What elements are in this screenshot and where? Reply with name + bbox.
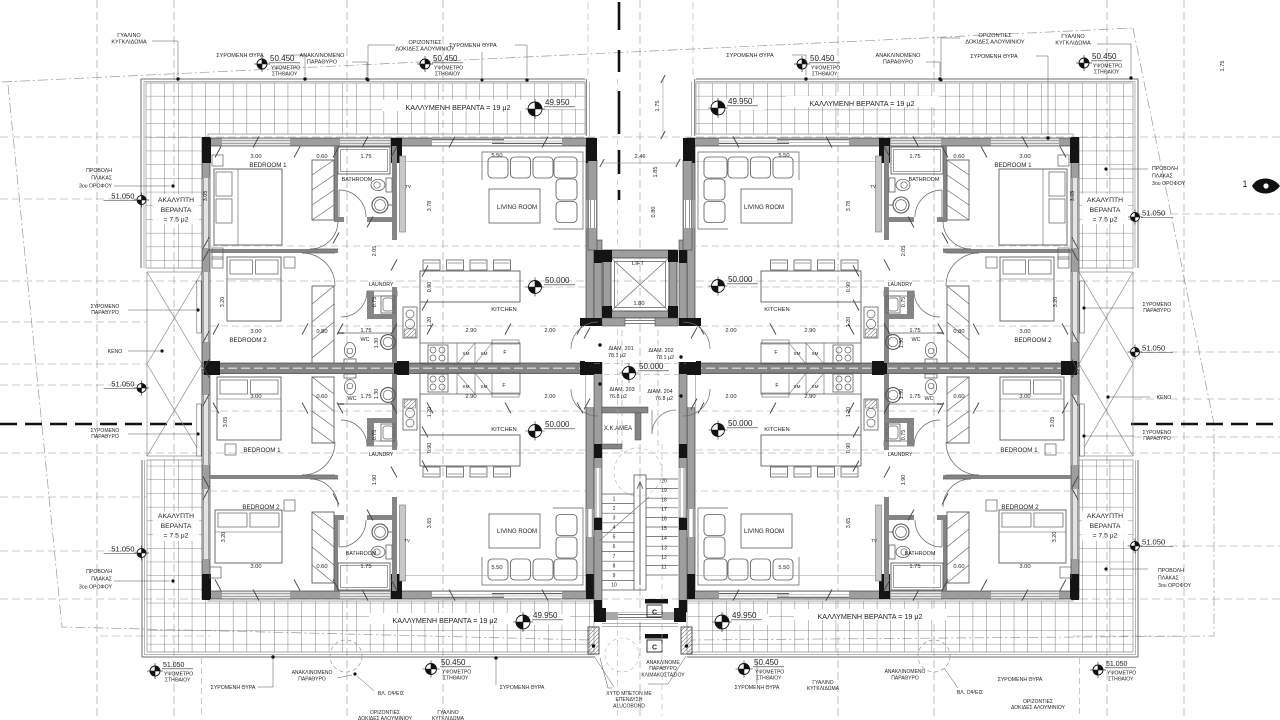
svg-text:0.75: 0.75 bbox=[901, 430, 907, 441]
svg-text:3.05: 3.05 bbox=[223, 417, 229, 428]
svg-text:ΔΟΚΙΔΕΣ ΑΛΟΥΜΙΝΙΟΥ: ΔΟΚΙΔΕΣ ΑΛΟΥΜΙΝΙΟΥ bbox=[395, 46, 455, 52]
svg-text:ΣΥΡΟΜΕΝΟ: ΣΥΡΟΜΕΝΟ bbox=[1143, 430, 1172, 436]
svg-text:3.00: 3.00 bbox=[1019, 394, 1030, 400]
svg-text:F: F bbox=[503, 350, 506, 356]
svg-text:ΒΕΡΑΝΤΑ: ΒΕΡΑΝΤΑ bbox=[1090, 523, 1121, 530]
svg-text:ΑΚΑΛΥΠΤΗ: ΑΚΑΛΥΠΤΗ bbox=[1087, 513, 1123, 520]
svg-text:3.78: 3.78 bbox=[427, 201, 433, 212]
svg-text:5.50: 5.50 bbox=[778, 153, 789, 159]
svg-text:SM: SM bbox=[463, 384, 470, 389]
svg-text:ΠΡΟΒΟΛΗ: ΠΡΟΒΟΛΗ bbox=[1152, 166, 1178, 172]
svg-text:ΑΝΑΚΛΙΝΟΜΕ: ΑΝΑΚΛΙΝΟΜΕ bbox=[646, 660, 680, 666]
svg-text:0.75: 0.75 bbox=[372, 430, 378, 441]
svg-text:ΣΥΡΟΜΕΝΗ ΘΥΡΑ: ΣΥΡΟΜΕΝΗ ΘΥΡΑ bbox=[216, 53, 264, 59]
svg-text:LIVING ROOM: LIVING ROOM bbox=[497, 529, 537, 535]
svg-text:ΚΥΓΚΛΙΔΩΜΑ: ΚΥΓΚΛΙΔΩΜΑ bbox=[807, 686, 840, 692]
svg-text:1.90: 1.90 bbox=[901, 475, 907, 486]
svg-text:ΕΠΕΝΔΥΣΗ: ΕΠΕΝΔΥΣΗ bbox=[616, 697, 643, 703]
svg-text:51.050: 51.050 bbox=[111, 192, 134, 201]
svg-text:51.050: 51.050 bbox=[1142, 538, 1165, 547]
svg-text:ΥΨΟΜΕΤΡΟ: ΥΨΟΜΕΤΡΟ bbox=[755, 669, 784, 675]
svg-text:5.50: 5.50 bbox=[491, 565, 502, 571]
svg-text:ΣΥΡΟΜΕΝΟ: ΣΥΡΟΜΕΝΟ bbox=[1143, 302, 1172, 308]
svg-text:ΟΡΙΖΟΝΤΙΕΣ: ΟΡΙΖΟΝΤΙΕΣ bbox=[408, 40, 442, 46]
svg-text:ΔΟΚΙΔΕΣ ΑΛΟΥΜΙΝΙΟΥ: ΔΟΚΙΔΕΣ ΑΛΟΥΜΙΝΙΟΥ bbox=[358, 716, 413, 720]
svg-text:2.05: 2.05 bbox=[901, 246, 907, 257]
svg-text:0.90: 0.90 bbox=[427, 282, 433, 293]
svg-text:51.050: 51.050 bbox=[163, 662, 185, 669]
svg-text:0.80: 0.80 bbox=[316, 329, 327, 335]
svg-text:ΟΡΙΖΟΝΤΙΕΣ: ΟΡΙΖΟΝΤΙΕΣ bbox=[978, 33, 1012, 39]
svg-text:1.20: 1.20 bbox=[846, 317, 852, 328]
svg-text:LAUNDRY: LAUNDRY bbox=[369, 282, 394, 288]
svg-text:KITCHEN: KITCHEN bbox=[491, 307, 516, 313]
svg-text:51.050: 51.050 bbox=[111, 380, 134, 389]
svg-text:3: 3 bbox=[613, 516, 616, 522]
svg-text:ΠΑΡΑΘΥΡΟ: ΠΑΡΑΘΥΡΟ bbox=[649, 666, 677, 672]
svg-text:ΥΨΟΜΕΤΡΟ: ΥΨΟΜΕΤΡΟ bbox=[1093, 63, 1122, 69]
svg-text:50.450: 50.450 bbox=[754, 658, 779, 667]
svg-text:50.000: 50.000 bbox=[728, 275, 753, 284]
svg-text:ΥΨΟΜΕΤΡΟ: ΥΨΟΜΕΤΡΟ bbox=[164, 671, 193, 677]
svg-text:1.75: 1.75 bbox=[360, 328, 371, 334]
svg-text:ΠΛΑΚΑΣ: ΠΛΑΚΑΣ bbox=[91, 176, 112, 182]
svg-text:ΥΨΟΜΕΤΡΟ: ΥΨΟΜΕΤΡΟ bbox=[1107, 670, 1136, 676]
svg-text:2.90: 2.90 bbox=[465, 328, 476, 334]
svg-text:SM: SM bbox=[463, 351, 470, 356]
svg-text:2.90: 2.90 bbox=[465, 394, 476, 400]
svg-text:0.60: 0.60 bbox=[953, 564, 964, 570]
svg-text:= 7.5 μ2: = 7.5 μ2 bbox=[164, 533, 189, 540]
svg-text:3.00: 3.00 bbox=[250, 154, 261, 160]
svg-text:BEDROOM 2: BEDROOM 2 bbox=[229, 337, 267, 344]
svg-text:3.00: 3.00 bbox=[250, 394, 261, 400]
svg-text:3.20: 3.20 bbox=[1052, 532, 1058, 543]
svg-text:ΠΑΡΑΘΥΡΟ: ΠΑΡΑΘΥΡΟ bbox=[1143, 308, 1171, 314]
svg-text:ΔΙΑΜ. 202: ΔΙΑΜ. 202 bbox=[648, 348, 673, 354]
svg-text:1: 1 bbox=[613, 497, 616, 503]
svg-text:ΠΡΟΒΟΛΗ: ΠΡΟΒΟΛΗ bbox=[86, 569, 112, 575]
svg-text:0.90: 0.90 bbox=[846, 282, 852, 293]
svg-text:ΠΡΟΒΟΛΗ: ΠΡΟΒΟΛΗ bbox=[86, 168, 112, 174]
svg-text:ΠΑΡΑΘΥΡΟ: ΠΑΡΑΘΥΡΟ bbox=[307, 59, 338, 65]
svg-text:ΚΑΛΛΥΜΕΝΗ ΒΕΡΑΝΤΑ = 19 μ2: ΚΑΛΛΥΜΕΝΗ ΒΕΡΑΝΤΑ = 19 μ2 bbox=[405, 103, 510, 112]
svg-text:ΚΛΙΜΑΚΟΣΤΑΣΙΟΥ: ΚΛΙΜΑΚΟΣΤΑΣΙΟΥ bbox=[641, 672, 685, 678]
svg-text:1.20: 1.20 bbox=[846, 407, 852, 418]
svg-text:ΑΝΑΚΛΙΝΟΜΕΝΟ: ΑΝΑΚΛΙΝΟΜΕΝΟ bbox=[876, 53, 922, 59]
svg-text:1.20: 1.20 bbox=[427, 407, 433, 418]
svg-text:49.950: 49.950 bbox=[545, 98, 570, 107]
svg-text:ALUCOBOND: ALUCOBOND bbox=[613, 703, 645, 709]
svg-text:ΚΑΛΛΥΜΕΝΗ ΒΕΡΑΝΤΑ = 19 μ2: ΚΑΛΛΥΜΕΝΗ ΒΕΡΑΝΤΑ = 19 μ2 bbox=[392, 616, 497, 625]
svg-text:ΣΥΡΟΜΕΝΗ ΘΥΡΑ: ΣΥΡΟΜΕΝΗ ΘΥΡΑ bbox=[726, 53, 774, 59]
svg-text:3.20: 3.20 bbox=[221, 532, 227, 543]
svg-text:ΣΤΗΘΑΙΟΥ: ΣΤΗΘΑΙΟΥ bbox=[435, 72, 461, 78]
svg-text:3.00: 3.00 bbox=[250, 329, 261, 335]
svg-text:TV: TV bbox=[870, 184, 877, 189]
svg-text:ΚΥΓΚΛΙΔΩΜΑ: ΚΥΓΚΛΙΔΩΜΑ bbox=[1055, 40, 1091, 46]
svg-text:ΔΙΑΜ. 201: ΔΙΑΜ. 201 bbox=[608, 346, 633, 352]
svg-text:BEDROOM 2: BEDROOM 2 bbox=[242, 504, 280, 511]
svg-text:ΠΑΡΑΘΥΡΟ: ΠΑΡΑΘΥΡΟ bbox=[883, 59, 914, 65]
svg-text:0.80: 0.80 bbox=[953, 329, 964, 335]
svg-text:1.30: 1.30 bbox=[899, 338, 905, 349]
svg-text:51.050: 51.050 bbox=[1142, 344, 1165, 353]
svg-text:ΣΤΗΘΑΙΟΥ: ΣΤΗΘΑΙΟΥ bbox=[165, 678, 191, 684]
svg-text:WC: WC bbox=[348, 396, 357, 402]
svg-text:SM: SM bbox=[481, 384, 488, 389]
svg-text:TV: TV bbox=[404, 538, 411, 543]
svg-text:2.00: 2.00 bbox=[544, 394, 555, 400]
svg-text:0.60: 0.60 bbox=[316, 394, 327, 400]
svg-text:ΧΥΤΟ ΜΠΕΤΟΝ ΜΕ: ΧΥΤΟ ΜΠΕΤΟΝ ΜΕ bbox=[606, 691, 652, 697]
svg-text:0.60: 0.60 bbox=[316, 154, 327, 160]
svg-text:LIVING ROOM: LIVING ROOM bbox=[744, 205, 784, 211]
svg-text:ΚΕΝΟ: ΚΕΝΟ bbox=[1157, 395, 1172, 401]
svg-text:ΣΥΡΟΜΕΝΗ ΘΥΡΑ: ΣΥΡΟΜΕΝΗ ΘΥΡΑ bbox=[970, 54, 1018, 60]
svg-text:1: 1 bbox=[1242, 179, 1247, 189]
svg-text:2.05: 2.05 bbox=[372, 246, 378, 257]
svg-text:C: C bbox=[652, 610, 657, 617]
svg-text:8: 8 bbox=[613, 563, 616, 569]
svg-text:ΚΕΝΟ: ΚΕΝΟ bbox=[108, 349, 123, 355]
svg-text:BATHROOM: BATHROOM bbox=[342, 177, 373, 183]
svg-text:1.80: 1.80 bbox=[633, 301, 644, 307]
svg-text:Χ.Κ.ΑΜΕΑ: Χ.Κ.ΑΜΕΑ bbox=[604, 426, 632, 432]
svg-text:SM: SM bbox=[812, 351, 819, 356]
svg-text:ΣΥΡΟΜΕΝΟ: ΣΥΡΟΜΕΝΟ bbox=[91, 428, 120, 434]
svg-text:BEDROOM 2: BEDROOM 2 bbox=[1014, 337, 1052, 344]
svg-text:BEDROOM 1: BEDROOM 1 bbox=[1000, 447, 1038, 454]
svg-text:3.00: 3.00 bbox=[1019, 154, 1030, 160]
svg-text:ΣΥΡΟΜΕΝΟ: ΣΥΡΟΜΕΝΟ bbox=[91, 304, 120, 310]
svg-text:KITCHEN: KITCHEN bbox=[764, 307, 789, 313]
svg-text:76.8 μ2: 76.8 μ2 bbox=[609, 394, 627, 400]
svg-text:ΑΝΑΚΛΙΝΟΜΕΝΟ: ΑΝΑΚΛΙΝΟΜΕΝΟ bbox=[885, 669, 926, 675]
svg-text:LIVING ROOM: LIVING ROOM bbox=[744, 529, 784, 535]
svg-text:0.90: 0.90 bbox=[427, 443, 433, 454]
svg-text:51.050: 51.050 bbox=[1142, 209, 1165, 218]
svg-text:ΣΤΗΘΑΙΟΥ: ΣΤΗΘΑΙΟΥ bbox=[1094, 70, 1120, 76]
svg-text:BATHROOM: BATHROOM bbox=[909, 177, 940, 183]
svg-text:0.60: 0.60 bbox=[953, 154, 964, 160]
svg-text:50.450: 50.450 bbox=[433, 54, 458, 63]
svg-text:ΓΥΑΛΙΝΟ: ΓΥΑΛΙΝΟ bbox=[812, 680, 833, 686]
svg-text:SM: SM bbox=[481, 351, 488, 356]
svg-text:50.000: 50.000 bbox=[639, 362, 664, 371]
svg-text:2: 2 bbox=[613, 506, 616, 512]
svg-text:ΔΙΑΜ. 203: ΔΙΑΜ. 203 bbox=[609, 387, 634, 393]
svg-text:50.000: 50.000 bbox=[728, 419, 753, 428]
svg-text:1.75: 1.75 bbox=[1220, 61, 1226, 72]
svg-text:5.50: 5.50 bbox=[778, 565, 789, 571]
svg-text:3ου ΟΡΟΦΟΥ: 3ου ΟΡΟΦΟΥ bbox=[79, 584, 113, 590]
svg-text:51.050: 51.050 bbox=[1106, 661, 1128, 668]
svg-text:76.8 μ2: 76.8 μ2 bbox=[655, 396, 673, 402]
svg-text:2.46: 2.46 bbox=[635, 154, 646, 160]
svg-text:ΠΡΟΒΟΛΗ: ΠΡΟΒΟΛΗ bbox=[1158, 568, 1184, 574]
svg-text:3.20: 3.20 bbox=[1053, 297, 1059, 308]
svg-text:50.450: 50.450 bbox=[270, 54, 295, 63]
svg-text:ΒΕΡΑΝΤΑ: ΒΕΡΑΝΤΑ bbox=[1090, 207, 1121, 214]
svg-text:3.05: 3.05 bbox=[1050, 417, 1056, 428]
svg-text:ΑΝΑΚΛΙΝΟΜΕΝΟ: ΑΝΑΚΛΙΝΟΜΕΝΟ bbox=[292, 670, 333, 676]
svg-text:3.20: 3.20 bbox=[220, 297, 226, 308]
svg-text:ΚΥΓΚΛΙΔΩΜΑ: ΚΥΓΚΛΙΔΩΜΑ bbox=[111, 39, 147, 45]
svg-text:3.65: 3.65 bbox=[427, 518, 433, 529]
svg-text:TV: TV bbox=[871, 538, 878, 543]
svg-text:3.00: 3.00 bbox=[250, 564, 261, 570]
svg-text:LAUNDRY: LAUNDRY bbox=[888, 452, 913, 458]
svg-text:1.75: 1.75 bbox=[655, 101, 661, 112]
svg-text:ΥΨΟΜΕΤΡΟ: ΥΨΟΜΕΤΡΟ bbox=[811, 65, 840, 71]
svg-text:ΚΥΓΚΛΙΔΩΜΑ: ΚΥΓΚΛΙΔΩΜΑ bbox=[432, 716, 465, 720]
svg-text:ΣΥΡΟΜΕΝΗ ΘΥΡΑ: ΣΥΡΟΜΕΝΗ ΘΥΡΑ bbox=[735, 685, 780, 691]
svg-text:1.30: 1.30 bbox=[374, 338, 380, 349]
svg-text:1.75: 1.75 bbox=[909, 154, 920, 160]
svg-text:0.80: 0.80 bbox=[651, 207, 657, 218]
svg-text:ΠΛΑΚΑΣ: ΠΛΑΚΑΣ bbox=[1158, 575, 1179, 581]
svg-text:BEDROOM 1: BEDROOM 1 bbox=[249, 162, 287, 169]
svg-text:ΒΕΡΑΝΤΑ: ΒΕΡΑΝΤΑ bbox=[161, 523, 192, 530]
svg-text:1.20: 1.20 bbox=[427, 317, 433, 328]
svg-text:3.00: 3.00 bbox=[1019, 564, 1030, 570]
svg-text:ΑΝΑΚΛΙΝΟΜΕΝΟ: ΑΝΑΚΛΙΝΟΜΕΝΟ bbox=[300, 53, 346, 59]
svg-text:50.000: 50.000 bbox=[545, 420, 570, 429]
svg-text:ΒΛ. ΟΨΕΙΣ: ΒΛ. ΟΨΕΙΣ bbox=[378, 691, 404, 697]
svg-text:F: F bbox=[775, 383, 778, 389]
svg-text:1.85: 1.85 bbox=[653, 167, 659, 178]
svg-text:50.450: 50.450 bbox=[441, 658, 466, 667]
svg-text:49.950: 49.950 bbox=[533, 611, 558, 620]
svg-text:3.00: 3.00 bbox=[1019, 329, 1030, 335]
svg-text:5.50: 5.50 bbox=[491, 153, 502, 159]
svg-text:LAUNDRY: LAUNDRY bbox=[369, 452, 394, 458]
svg-text:SM: SM bbox=[794, 351, 801, 356]
svg-text:ΣΤΗΘΑΙΟΥ: ΣΤΗΘΑΙΟΥ bbox=[756, 676, 782, 682]
svg-text:ΔΙΑΜ. 204: ΔΙΑΜ. 204 bbox=[647, 389, 672, 395]
svg-text:ΥΨΟΜΕΤΡΟ: ΥΨΟΜΕΤΡΟ bbox=[271, 65, 300, 71]
svg-text:TV: TV bbox=[405, 184, 412, 189]
svg-text:= 7.5 μ2: = 7.5 μ2 bbox=[164, 217, 189, 224]
svg-text:1.30: 1.30 bbox=[899, 389, 905, 400]
svg-text:5: 5 bbox=[613, 535, 616, 541]
svg-text:LIVING ROOM: LIVING ROOM bbox=[497, 205, 537, 211]
svg-text:3.05: 3.05 bbox=[1070, 191, 1076, 202]
svg-text:BEDROOM 1: BEDROOM 1 bbox=[994, 162, 1032, 169]
svg-text:1.30: 1.30 bbox=[374, 389, 380, 400]
svg-text:LAUNDRY: LAUNDRY bbox=[888, 282, 913, 288]
svg-text:C: C bbox=[652, 645, 657, 652]
svg-text:ΣΥΡΟΜΕΝΗ ΘΥΡΑ: ΣΥΡΟΜΕΝΗ ΘΥΡΑ bbox=[998, 677, 1043, 683]
svg-text:1.75: 1.75 bbox=[360, 394, 371, 400]
svg-text:ΔΟΚΙΔΕΣ ΑΛΟΥΜΙΝΙΟΥ: ΔΟΚΙΔΕΣ ΑΛΟΥΜΙΝΙΟΥ bbox=[965, 39, 1025, 45]
svg-text:WC: WC bbox=[925, 396, 934, 402]
svg-text:ΣΤΗΘΑΙΟΥ: ΣΤΗΘΑΙΟΥ bbox=[1108, 677, 1134, 683]
svg-text:BATHROOM: BATHROOM bbox=[346, 551, 377, 557]
svg-text:9: 9 bbox=[613, 573, 616, 579]
svg-text:3.05: 3.05 bbox=[203, 191, 209, 202]
svg-text:ΑΚΑΛΥΠΤΗ: ΑΚΑΛΥΠΤΗ bbox=[1087, 197, 1123, 204]
svg-text:0.60: 0.60 bbox=[953, 394, 964, 400]
svg-text:3.65: 3.65 bbox=[846, 518, 852, 529]
svg-text:ΒΛ. ΟΨΕΙΣ: ΒΛ. ΟΨΕΙΣ bbox=[957, 690, 983, 696]
svg-text:3.78: 3.78 bbox=[846, 201, 852, 212]
svg-text:ΚΑΛΛΥΜΕΝΗ ΒΕΡΑΝΤΑ = 19 μ2: ΚΑΛΛΥΜΕΝΗ ΒΕΡΑΝΤΑ = 19 μ2 bbox=[809, 99, 914, 108]
svg-text:ΥΨΟΜΕΤΡΟ: ΥΨΟΜΕΤΡΟ bbox=[442, 669, 471, 675]
svg-text:2.90: 2.90 bbox=[804, 328, 815, 334]
svg-text:49.950: 49.950 bbox=[728, 97, 753, 106]
svg-text:50.450: 50.450 bbox=[1092, 52, 1117, 61]
svg-text:KITCHEN: KITCHEN bbox=[764, 427, 789, 433]
svg-text:BEDROOM 1: BEDROOM 1 bbox=[243, 447, 281, 454]
svg-text:ΥΨΟΜΕΤΡΟ: ΥΨΟΜΕΤΡΟ bbox=[434, 65, 463, 71]
svg-text:ΠΑΡΑΘΥΡΟ: ΠΑΡΑΘΥΡΟ bbox=[91, 434, 119, 440]
svg-text:ΠΛΑΚΑΣ: ΠΛΑΚΑΣ bbox=[1152, 173, 1173, 179]
svg-text:ΠΑΡΑΘΥΡΟ: ΠΑΡΑΘΥΡΟ bbox=[891, 676, 919, 682]
svg-text:BATHROOM: BATHROOM bbox=[905, 551, 936, 557]
svg-text:LIFT: LIFT bbox=[632, 261, 644, 267]
svg-text:78.1 μ2: 78.1 μ2 bbox=[656, 355, 674, 361]
svg-text:50.000: 50.000 bbox=[545, 276, 570, 285]
svg-text:1.75: 1.75 bbox=[909, 394, 920, 400]
svg-text:F: F bbox=[502, 383, 505, 389]
svg-text:F: F bbox=[774, 350, 777, 356]
svg-text:2.90: 2.90 bbox=[804, 394, 815, 400]
svg-text:1.75: 1.75 bbox=[360, 564, 371, 570]
svg-text:ΟΡΙΖΟΝΤΙΕΣ: ΟΡΙΖΟΝΤΙΕΣ bbox=[1023, 699, 1053, 705]
svg-text:2.00: 2.00 bbox=[725, 394, 736, 400]
svg-text:7: 7 bbox=[613, 554, 616, 560]
svg-text:ΓΥΑΛΙΝΟ: ΓΥΑΛΙΝΟ bbox=[1061, 34, 1085, 40]
svg-text:ΓΥΑΛΙΝΟ: ΓΥΑΛΙΝΟ bbox=[117, 33, 141, 39]
svg-text:ΣΥΡΟΜΕΝΗ ΘΥΡΑ: ΣΥΡΟΜΕΝΗ ΘΥΡΑ bbox=[500, 685, 545, 691]
svg-text:ΣΥΡΟΜΕΝΗ ΘΥΡΑ: ΣΥΡΟΜΕΝΗ ΘΥΡΑ bbox=[449, 43, 497, 49]
svg-text:WC: WC bbox=[361, 337, 370, 343]
svg-text:ΑΚΑΛΥΠΤΗ: ΑΚΑΛΥΠΤΗ bbox=[158, 513, 194, 520]
svg-text:49.950: 49.950 bbox=[732, 611, 757, 620]
svg-text:4: 4 bbox=[613, 525, 616, 531]
svg-text:50.450: 50.450 bbox=[810, 54, 835, 63]
svg-text:1.75: 1.75 bbox=[909, 328, 920, 334]
svg-text:2.00: 2.00 bbox=[725, 328, 736, 334]
svg-text:ΣΤΗΘΑΙΟΥ: ΣΤΗΘΑΙΟΥ bbox=[812, 72, 838, 78]
svg-text:= 7.5 μ2: = 7.5 μ2 bbox=[1093, 217, 1118, 224]
svg-text:3ου ΟΡΟΦΟΥ: 3ου ΟΡΟΦΟΥ bbox=[79, 183, 113, 189]
svg-text:SM: SM bbox=[812, 384, 819, 389]
svg-text:ΠΑΡΑΘΥΡΟ: ΠΑΡΑΘΥΡΟ bbox=[1143, 436, 1171, 442]
svg-text:WC: WC bbox=[912, 337, 921, 343]
svg-text:1.75: 1.75 bbox=[909, 564, 920, 570]
svg-text:KITCHEN: KITCHEN bbox=[491, 427, 516, 433]
svg-text:ΣΤΗΘΑΙΟΥ: ΣΤΗΘΑΙΟΥ bbox=[272, 72, 298, 78]
svg-text:= 7.5 μ2: = 7.5 μ2 bbox=[1093, 533, 1118, 540]
svg-text:2.00: 2.00 bbox=[544, 328, 555, 334]
svg-text:0.75: 0.75 bbox=[901, 297, 907, 308]
svg-text:ΑΚΑΛΥΠΤΗ: ΑΚΑΛΥΠΤΗ bbox=[158, 197, 194, 204]
svg-text:10: 10 bbox=[611, 583, 617, 589]
svg-text:BEDROOM 2: BEDROOM 2 bbox=[1001, 504, 1039, 511]
svg-text:ΠΑΡΑΘΥΡΟ: ΠΑΡΑΘΥΡΟ bbox=[298, 677, 326, 683]
svg-text:1.75: 1.75 bbox=[360, 154, 371, 160]
svg-text:1.90: 1.90 bbox=[372, 475, 378, 486]
svg-text:ΚΑΛΛΥΜΕΝΗ ΒΕΡΑΝΤΑ = 19 μ2: ΚΑΛΛΥΜΕΝΗ ΒΕΡΑΝΤΑ = 19 μ2 bbox=[817, 612, 922, 621]
svg-text:0.90: 0.90 bbox=[846, 443, 852, 454]
svg-text:SM: SM bbox=[794, 384, 801, 389]
svg-text:0.75: 0.75 bbox=[372, 297, 378, 308]
svg-text:3ου ΟΡΟΦΟΥ: 3ου ΟΡΟΦΟΥ bbox=[1158, 583, 1192, 589]
svg-text:ΠΑΡΑΘΥΡΟ: ΠΑΡΑΘΥΡΟ bbox=[91, 310, 119, 316]
svg-text:0.60: 0.60 bbox=[316, 564, 327, 570]
svg-text:ΔΟΚΙΔΕΣ ΑΛΟΥΜΙΝΙΟΥ: ΔΟΚΙΔΕΣ ΑΛΟΥΜΙΝΙΟΥ bbox=[1011, 705, 1066, 711]
svg-text:3ου ΟΡΟΦΟΥ: 3ου ΟΡΟΦΟΥ bbox=[1152, 181, 1186, 187]
svg-text:ΣΥΡΟΜΕΝΗ ΘΥΡΑ: ΣΥΡΟΜΕΝΗ ΘΥΡΑ bbox=[211, 685, 256, 691]
svg-text:ΠΛΑΚΑΣ: ΠΛΑΚΑΣ bbox=[91, 577, 112, 583]
svg-text:6: 6 bbox=[613, 544, 616, 550]
svg-text:78.1 μ2: 78.1 μ2 bbox=[608, 353, 626, 359]
svg-text:ΣΤΗΘΑΙΟΥ: ΣΤΗΘΑΙΟΥ bbox=[443, 676, 469, 682]
svg-text:ΒΕΡΑΝΤΑ: ΒΕΡΑΝΤΑ bbox=[161, 207, 192, 214]
svg-text:51.050: 51.050 bbox=[111, 545, 134, 554]
